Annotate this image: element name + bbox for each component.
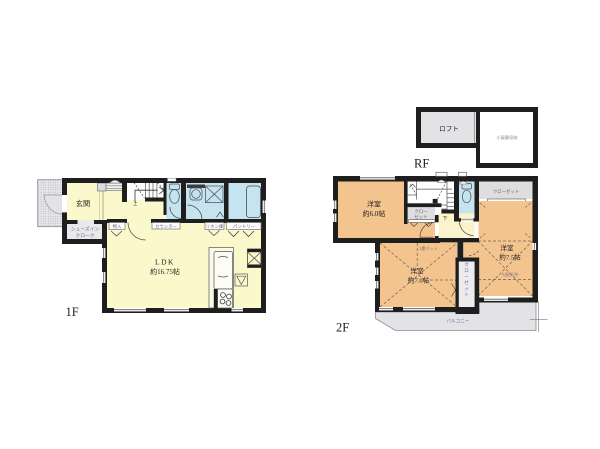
svg-text:RF: RF bbox=[414, 157, 429, 171]
svg-text:洋室: 洋室 bbox=[367, 200, 381, 209]
svg-text:ッ: ッ bbox=[464, 286, 469, 291]
svg-text:1F: 1F bbox=[66, 305, 79, 319]
svg-text:リネン庫: リネン庫 bbox=[206, 223, 224, 230]
svg-text:バルコニー: バルコニー bbox=[447, 319, 470, 324]
svg-text:勾配天井: 勾配天井 bbox=[502, 271, 519, 278]
svg-text:2F: 2F bbox=[336, 321, 349, 335]
svg-text:ト: ト bbox=[464, 292, 469, 297]
svg-text:ロ: ロ bbox=[464, 268, 469, 273]
svg-text:ゼ: ゼ bbox=[464, 279, 469, 285]
svg-text:カウンター: カウンター bbox=[155, 223, 177, 230]
svg-text:ゼット: ゼット bbox=[414, 214, 427, 220]
svg-text:約7.5帖: 約7.5帖 bbox=[499, 253, 521, 262]
svg-text:LDK: LDK bbox=[155, 258, 175, 267]
svg-text:パントリー: パントリー bbox=[233, 224, 255, 229]
svg-text:約7.0帖: 約7.0帖 bbox=[408, 276, 430, 285]
svg-text:玄関: 玄関 bbox=[76, 199, 90, 208]
svg-text:洋室: 洋室 bbox=[410, 267, 424, 276]
svg-text:約6.0帖: 約6.0帖 bbox=[363, 209, 386, 218]
svg-text:約16.75帖: 約16.75帖 bbox=[150, 267, 180, 276]
svg-text:小屋裏収納: 小屋裏収納 bbox=[497, 134, 518, 141]
svg-text:物入: 物入 bbox=[113, 223, 122, 230]
svg-text:クローク: クローク bbox=[75, 233, 94, 239]
svg-text:クローゼット: クローゼット bbox=[493, 188, 519, 195]
svg-text:洋室: 洋室 bbox=[500, 244, 514, 253]
svg-text:シューズイン: シューズイン bbox=[71, 226, 100, 233]
svg-text:ー: ー bbox=[464, 274, 469, 279]
svg-text:上: 上 bbox=[133, 200, 138, 206]
svg-text:下: 下 bbox=[443, 216, 448, 222]
svg-text:ロフト: ロフト bbox=[439, 125, 459, 133]
